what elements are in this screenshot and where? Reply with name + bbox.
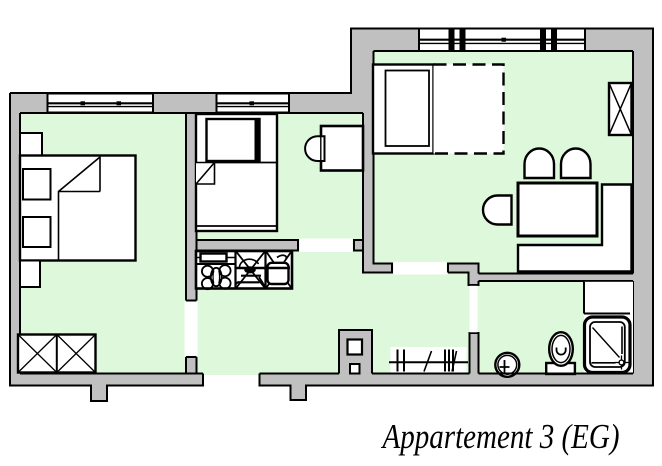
svg-text:Appartement 3 (EG): Appartement 3 (EG) (381, 417, 620, 456)
